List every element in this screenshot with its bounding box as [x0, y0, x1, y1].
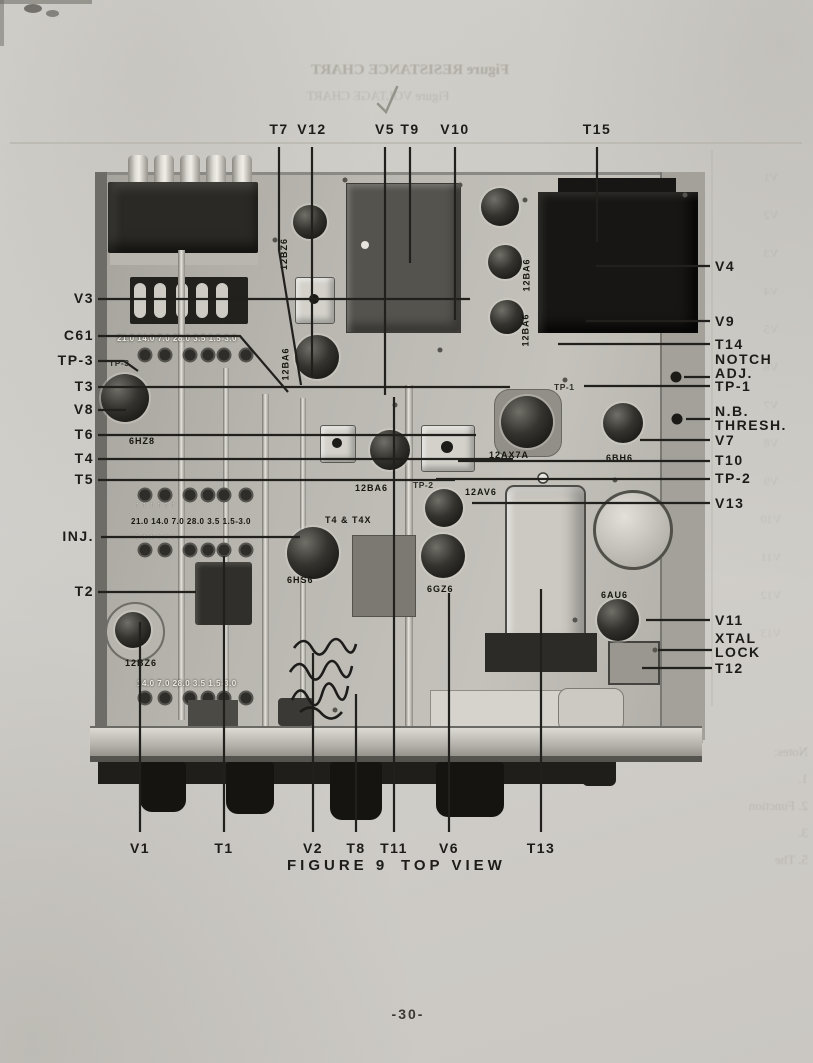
- t2-coil-can: [195, 562, 252, 625]
- wafer-slot: [134, 283, 146, 318]
- callout-t4: T4: [0, 451, 94, 465]
- scanned-manual-page: Figure RESISTANCE CHART Figure VOLTAGE C…: [0, 0, 813, 1063]
- bleedthrough-resistance-chart-title: Figure RESISTANCE CHART: [250, 62, 570, 79]
- callout-t3: T3: [0, 379, 94, 393]
- misc-underside-part: [188, 700, 238, 726]
- tube-v12: [293, 205, 327, 239]
- knob: [436, 762, 504, 817]
- tuning-shaft: [262, 394, 269, 746]
- callout-t10: T10: [715, 453, 744, 467]
- callout-t2: T2: [0, 584, 94, 598]
- tube-socket-v1: [115, 612, 151, 648]
- callout-t6: T6: [0, 427, 94, 441]
- front-rail: [90, 726, 702, 760]
- if-shield-screw: [361, 241, 369, 249]
- stencil-12ba6-d: 12BA6: [355, 483, 388, 493]
- callout-notch-adj: NOTCH ADJ.: [715, 352, 772, 380]
- figure-caption-view: TOP VIEW: [401, 857, 506, 874]
- shield-can: [352, 535, 416, 617]
- wafer-slot: [196, 283, 208, 318]
- callout-v2: V2: [303, 841, 323, 855]
- tube-12ba6-column: [481, 188, 519, 226]
- chassis-left-edge: [95, 172, 107, 740]
- scan-edge: [0, 0, 4, 46]
- stencil-12bz6-bottom: 12BZ6: [125, 658, 157, 668]
- stencil-tp1: TP-1: [554, 382, 574, 392]
- electrolytic-capacitor: [593, 490, 673, 570]
- callout-t7: T7: [269, 122, 288, 136]
- crystal-filter-box: [505, 485, 586, 647]
- dial-scale-row2: 21.0 14.0 7.0 28.0 3.5 1.5-3.0: [131, 517, 251, 526]
- dial-arrows-bottom: ↑ ↑ ↑ ↑ ↑ ↑: [135, 532, 176, 541]
- bleedthrough-voltage-chart-title: Figure VOLTAGE CHART: [228, 88, 528, 104]
- if-can: [295, 277, 335, 324]
- tube-12ax7a: [501, 396, 553, 448]
- callout-v9: V9: [715, 314, 735, 328]
- dial-arrows-top: ↑ ↑ ↑ ↑ ↑ ↑: [135, 500, 176, 509]
- t12-transformer-box: [608, 641, 660, 685]
- tube-6bh6-v7: [603, 403, 643, 443]
- callout-v11: V11: [715, 613, 744, 627]
- scan-speck: [46, 10, 59, 17]
- stencil-12av6: 12AV6: [465, 487, 497, 497]
- callout-v13: V13: [715, 496, 744, 510]
- page-number: -30-: [378, 1006, 438, 1022]
- callout-t8: T8: [346, 841, 365, 855]
- scan-edge: [0, 0, 92, 4]
- bleedthrough-table-line: [711, 150, 713, 706]
- power-transformer-t15: [538, 192, 698, 333]
- callout-inj: INJ.: [0, 529, 94, 543]
- tube-12av6-v13: [425, 489, 463, 527]
- knob: [140, 762, 186, 812]
- stencil-tp3: TP-3: [109, 358, 129, 368]
- knob: [330, 762, 382, 820]
- dial-scale-row3: 14.0 7.0 28.0 3.5 1.5-3.0: [137, 679, 237, 688]
- misc-underside-part: [278, 698, 314, 726]
- callout-v4: V4: [715, 259, 735, 273]
- callout-c61: C61: [0, 328, 94, 342]
- chassis-photo: 12BZ6 12BA6 12BA6 12BA6 12AX7A 6BH6 TP-1…: [95, 150, 703, 740]
- stencil-12ba6-b: 12BA6: [521, 313, 531, 346]
- callout-t12: T12: [715, 661, 744, 675]
- stencil-12ba6-a: 12BA6: [522, 258, 532, 291]
- callout-v10: V10: [440, 122, 469, 136]
- tube-6hs6: [287, 527, 339, 579]
- dial-scale-row1: 21.0 14.0 7.0 28.0 3.5 1.5-3.0: [117, 334, 237, 343]
- tube-v8-6hz8: [101, 374, 149, 422]
- stencil-t4-t4x: T4 & T4X: [325, 515, 372, 525]
- bleedthrough-table-line: [10, 142, 802, 144]
- tube-6au6-v11: [597, 599, 639, 641]
- knob: [226, 762, 274, 814]
- if-can: [320, 425, 356, 463]
- callout-tp3: TP-3: [0, 353, 94, 367]
- tube-12ba6-c: [295, 335, 339, 379]
- callout-t15: T15: [583, 122, 612, 136]
- tube-12ba6-column: [488, 245, 522, 279]
- front-foot: [582, 762, 616, 786]
- stencil-12ax7a: 12AX7A: [489, 450, 529, 460]
- callout-t11: T11: [380, 841, 408, 855]
- wafer-block: [130, 277, 248, 324]
- tuning-shaft: [178, 250, 185, 720]
- callout-v12: V12: [297, 122, 326, 136]
- stencil-6hz8: 6HZ8: [129, 436, 155, 446]
- callout-v5: V5: [375, 122, 395, 136]
- callout-tp1: TP-1: [715, 379, 751, 393]
- callout-v3: V3: [0, 291, 94, 305]
- stencil-12ba6-c: 12BA6: [281, 347, 291, 380]
- tube-12ba6-d: [370, 430, 410, 470]
- stencil-6bh6: 6BH6: [606, 453, 633, 463]
- tube-6gz6-v6: [421, 534, 465, 578]
- callout-t14: T14: [715, 337, 744, 351]
- callout-t1: T1: [214, 841, 233, 855]
- tube-12ba6-column: [490, 300, 524, 334]
- stencil-6gz6: 6GZ6: [427, 584, 454, 594]
- callout-tp2: TP-2: [715, 471, 751, 485]
- callout-v8: V8: [0, 402, 94, 416]
- figure-caption-number: FIGURE 9: [287, 857, 388, 874]
- wafer-slot: [154, 283, 166, 318]
- callout-v6: V6: [439, 841, 459, 855]
- callout-xtal-lock: XTAL LOCK: [715, 631, 761, 659]
- stencil-6hs6: 6HS6: [287, 575, 314, 585]
- callout-v7: V7: [715, 433, 735, 447]
- callout-v1: V1: [130, 841, 150, 855]
- scan-speck: [24, 4, 42, 13]
- callout-t9: T9: [400, 122, 419, 136]
- callout-nb-thresh: N.B. THRESH.: [715, 404, 787, 432]
- wafer-slot: [216, 283, 228, 318]
- stencil-12bz6-top: 12BZ6: [279, 238, 289, 270]
- callout-t5: T5: [0, 472, 94, 486]
- if-can: [421, 425, 475, 472]
- stencil-tp2: TP-2: [413, 480, 433, 490]
- if-shield-box-t9: [346, 183, 461, 333]
- switch-frame: [108, 182, 258, 253]
- terminal-strip: [485, 633, 597, 672]
- stencil-6au6: 6AU6: [601, 590, 628, 600]
- callout-t13: T13: [527, 841, 556, 855]
